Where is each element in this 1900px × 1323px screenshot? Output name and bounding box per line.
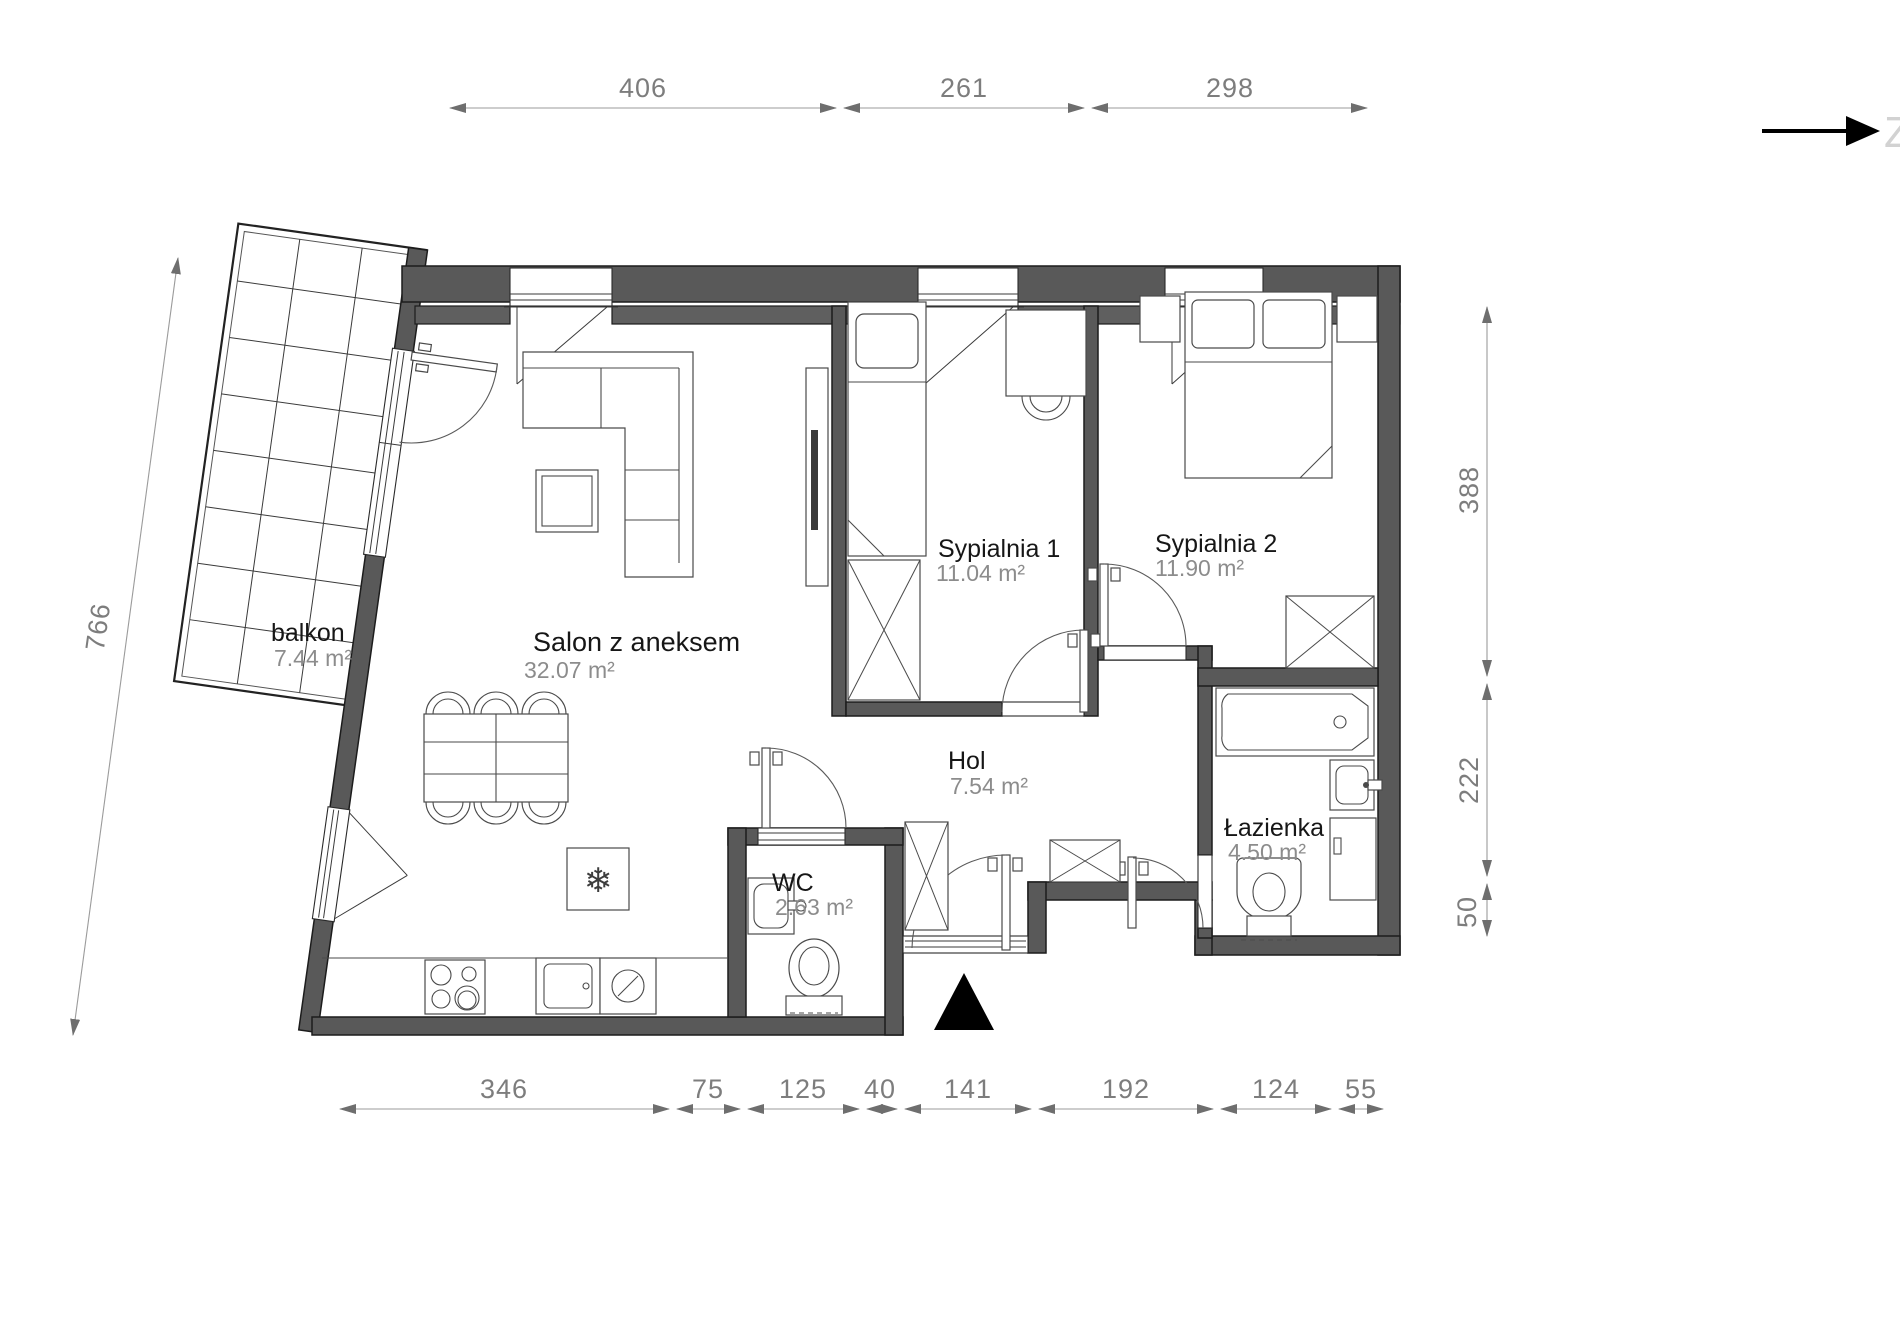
dimensions-left: 766 [73, 258, 178, 1035]
room-name: balkon [271, 619, 345, 647]
left-window [312, 807, 415, 931]
room-name: Salon z aneksem [533, 627, 740, 657]
label-balkon: balkon 7.44 m² [271, 619, 352, 671]
bedroom1-wardrobe [848, 560, 920, 700]
stove [425, 960, 485, 1014]
label-sypialnia1: Sypialnia 1 11.04 m² [936, 535, 1060, 586]
kitchen-counter: ❄ [322, 848, 728, 1014]
dim-right-2: 222 [1454, 756, 1484, 804]
room-area: 4.50 m² [1228, 839, 1306, 865]
bottom-wall [312, 1017, 903, 1035]
floor-plan-page: 406 261 298 766 388 222 50 346 75 125 40… [0, 0, 1900, 1323]
nightstand-right [1337, 296, 1377, 342]
room-name: Łazienka [1224, 814, 1324, 842]
direction-label: Z [1884, 108, 1900, 157]
room-name: WC [772, 869, 814, 897]
room-area: 2.63 m² [775, 894, 853, 920]
room-area: 11.90 m² [1155, 555, 1244, 581]
niche-wall [1028, 882, 1212, 900]
entrance-marker [934, 973, 994, 1030]
bedroom2-wardrobe [1286, 596, 1374, 668]
dim-bottom-8: 55 [1345, 1074, 1377, 1104]
direction-arrow-icon: Z [1762, 108, 1900, 157]
kitchen-sink [536, 958, 600, 1014]
wc-left-wall [728, 828, 746, 1017]
dim-right-1: 388 [1454, 466, 1484, 514]
bedroom1-bottom-wall [846, 702, 1002, 716]
room-name: Sypialnia 2 [1155, 530, 1277, 558]
bedroom2-furniture [1140, 292, 1377, 478]
label-sypialnia2: Sypialnia 2 11.90 m² [1155, 530, 1277, 581]
room-area: 32.07 m² [524, 657, 615, 683]
bathroom-toilet [1237, 858, 1301, 940]
bedroom1-furniture [848, 302, 1086, 556]
dim-top-3: 298 [1206, 73, 1254, 103]
wc-right-wall [885, 828, 903, 1035]
dim-bottom-4: 40 [864, 1074, 896, 1104]
fridge-icon: ❄ [567, 848, 629, 910]
floor-plan-svg: 406 261 298 766 388 222 50 346 75 125 40… [0, 0, 1900, 1323]
dimensions-right: 388 222 50 [1452, 307, 1487, 936]
room-area: 7.44 m² [274, 645, 352, 671]
coffee-table [536, 470, 598, 532]
bathtub [1216, 688, 1374, 756]
wc-toilet [786, 939, 842, 1015]
dim-bottom-1: 346 [480, 1074, 528, 1104]
label-lazienka: Łazienka 4.50 m² [1224, 814, 1324, 865]
bedroom1-door [1002, 630, 1100, 716]
room-name: Hol [948, 747, 986, 775]
label-salon: Salon z aneksem 32.07 m² [524, 627, 740, 683]
tv-cabinet [806, 368, 828, 586]
dim-bottom-6: 192 [1102, 1074, 1150, 1104]
dimensions-top: 406 261 298 [450, 73, 1367, 108]
label-hol: Hol 7.54 m² [948, 747, 1028, 799]
dim-bottom-3: 125 [779, 1074, 827, 1104]
dimensions-bottom: 346 75 125 40 141 192 124 55 [340, 1074, 1383, 1109]
dim-bottom-7: 124 [1252, 1074, 1300, 1104]
label-wc: WC 2.63 m² [772, 869, 853, 920]
desk [1006, 310, 1086, 420]
room-name: Sypialnia 1 [938, 535, 1060, 563]
room-area: 7.54 m² [950, 773, 1028, 799]
fridge-glyph: ❄ [584, 862, 613, 900]
bathroom-bottom-wall [1195, 936, 1400, 955]
dim-top-2: 261 [940, 73, 988, 103]
hall-shaft [905, 822, 948, 930]
bathroom-cabinet [1330, 818, 1376, 900]
wc-door [750, 748, 846, 845]
dim-left-1: 766 [80, 601, 116, 653]
dining-table [424, 692, 568, 824]
right-wall [1378, 266, 1400, 955]
dishwasher [600, 958, 656, 1014]
bathroom-top-wall [1198, 668, 1378, 686]
double-bed [1185, 292, 1332, 478]
nightstand-left [1140, 296, 1180, 342]
dim-top-1: 406 [619, 73, 667, 103]
washbasin [1330, 760, 1382, 810]
sofa [523, 352, 693, 577]
hall-niche-wardrobe [1050, 840, 1120, 882]
salon-bedroom1-wall [832, 306, 846, 716]
dim-bottom-5: 141 [944, 1074, 992, 1104]
single-bed [848, 302, 926, 556]
dim-bottom-2: 75 [692, 1074, 724, 1104]
dim-right-3: 50 [1452, 896, 1482, 928]
room-area: 11.04 m² [936, 560, 1025, 586]
